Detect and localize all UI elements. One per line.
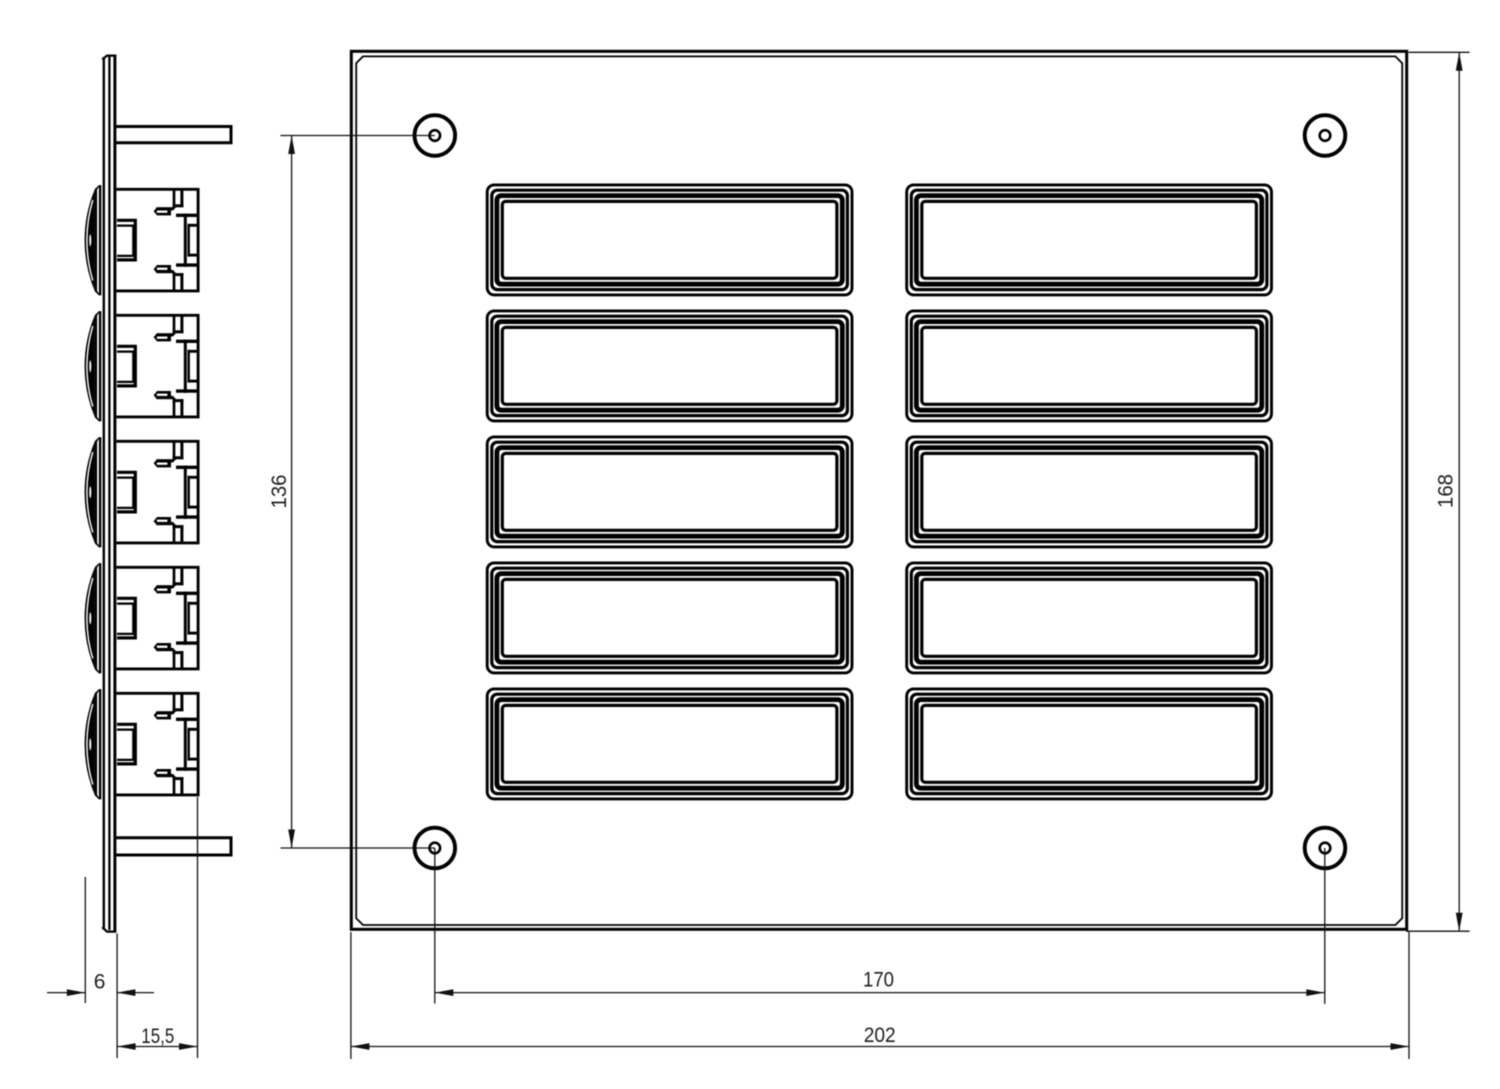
svg-text:202: 202 (864, 1024, 896, 1047)
svg-text:168: 168 (1434, 474, 1457, 508)
svg-text:136: 136 (268, 475, 291, 509)
svg-text:170: 170 (863, 969, 894, 992)
svg-text:15,5: 15,5 (141, 1025, 174, 1048)
svg-text:6: 6 (94, 971, 106, 994)
